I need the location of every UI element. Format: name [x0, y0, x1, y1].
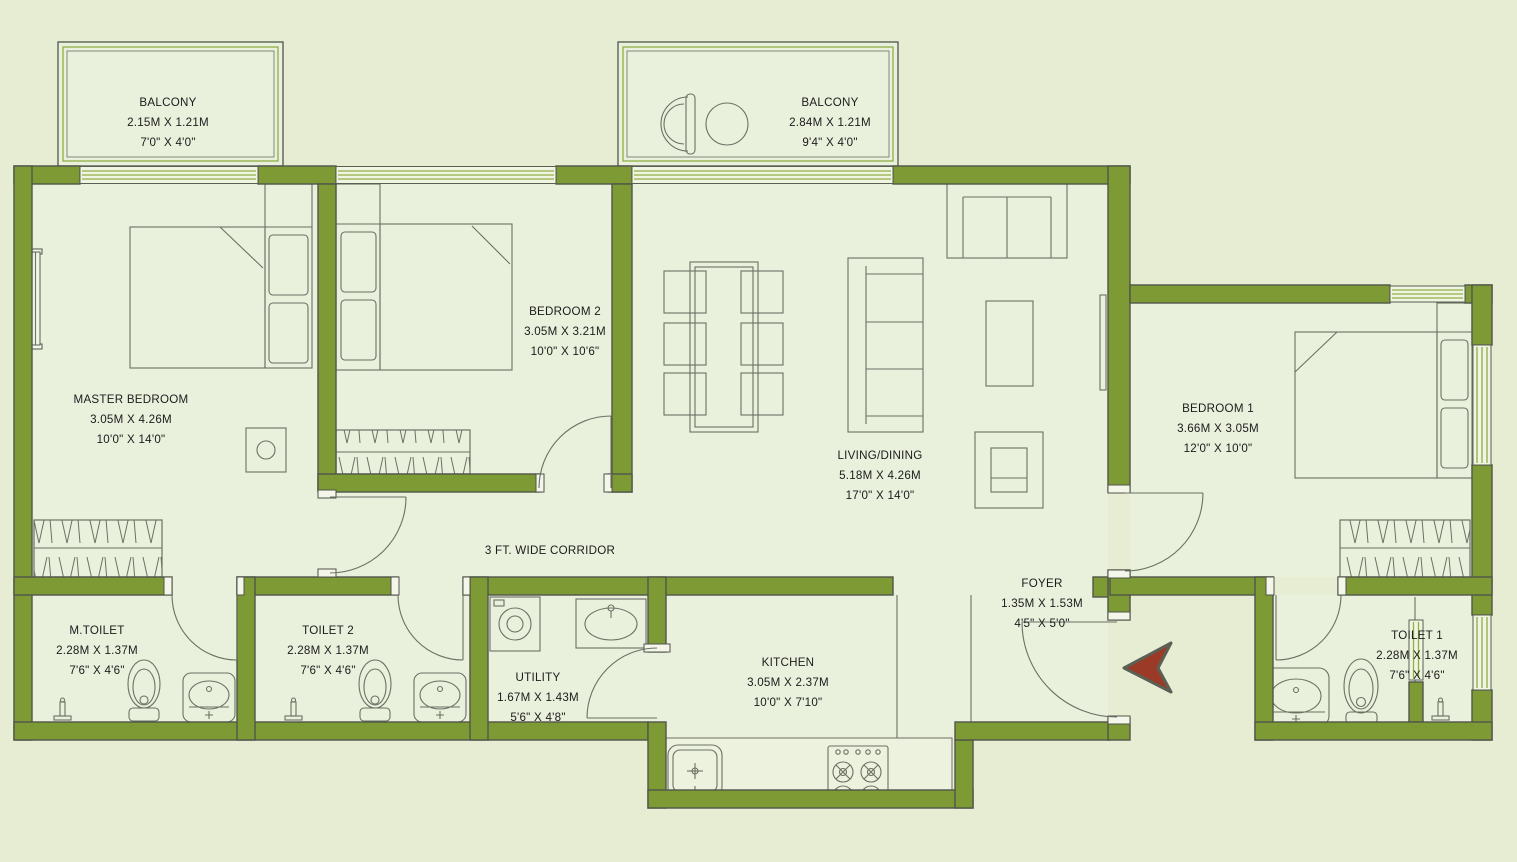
room-dim-metric: 3.66M X 3.05M [1177, 422, 1259, 435]
window-icon-balcony1 [80, 167, 258, 184]
room-name: TOILET 1 [1391, 629, 1443, 642]
room-dim-imperial: 4'5" X 5'0" [1014, 617, 1069, 630]
room-name: BEDROOM 2 [529, 305, 601, 318]
room-dim-imperial: 7'6" X 4'6" [1389, 669, 1444, 682]
window-icon-balcony2 [632, 167, 893, 184]
room-name: MASTER BEDROOM [74, 393, 189, 406]
bedroom2-wardrobe-icon [336, 430, 470, 474]
room-dim-imperial: 5'6" X 4'8" [510, 711, 565, 724]
room-dim-imperial: 10'0" X 7'10" [754, 696, 823, 709]
room-name: UTILITY [516, 671, 561, 684]
room-label-living-dining: LIVING/DINING 5.18M X 4.26M 17'0" X 14'0… [837, 449, 922, 502]
room-name: BALCONY [801, 96, 858, 109]
room-dim-metric: 1.67M X 1.43M [497, 691, 579, 704]
room-name: KITCHEN [762, 656, 815, 669]
room-dim-imperial: 7'6" X 4'6" [69, 664, 124, 677]
room-dim-imperial: 7'6" X 4'6" [300, 664, 355, 677]
room-name: LIVING/DINING [837, 449, 922, 462]
room-dim-metric: 2.84M X 1.21M [789, 116, 871, 129]
floor-plan-canvas: BALCONY 2.15M X 1.21M 7'0" X 4'0" BALCON… [0, 0, 1517, 862]
room-dim-metric: 3.05M X 4.26M [90, 413, 172, 426]
room-dim-metric: 2.28M X 1.37M [56, 644, 138, 657]
room-dim-imperial: 10'0" X 10'6" [531, 345, 600, 358]
room-dim-metric: 3.05M X 2.37M [747, 676, 829, 689]
room-label-bedroom-1: BEDROOM 1 3.66M X 3.05M 12'0" X 10'0" [1177, 402, 1259, 455]
entry-arrow-icon [1124, 643, 1171, 692]
room-dim-imperial: 9'4" X 4'0" [802, 136, 857, 149]
room-dim-imperial: 17'0" X 14'0" [846, 489, 915, 502]
corridor-label: 3 FT. WIDE CORRIDOR [485, 544, 615, 557]
room-dim-metric: 3.05M X 3.21M [524, 325, 606, 338]
room-label-bedroom-2: BEDROOM 2 3.05M X 3.21M 10'0" X 10'6" [524, 305, 606, 358]
room-dim-metric: 2.28M X 1.37M [287, 644, 369, 657]
room-dim-metric: 2.15M X 1.21M [127, 116, 209, 129]
room-dim-metric: 5.18M X 4.26M [839, 469, 921, 482]
window-icon-toilet1-right [1473, 615, 1491, 690]
room-dim-imperial: 10'0" X 14'0" [97, 433, 166, 446]
kitchen-counter [666, 738, 952, 790]
floor-plan: BALCONY 2.15M X 1.21M 7'0" X 4'0" BALCON… [0, 0, 1517, 862]
room-dim-metric: 2.28M X 1.37M [1376, 649, 1458, 662]
window-icon-bedroom1-right [1473, 345, 1491, 465]
room-name: BEDROOM 1 [1182, 402, 1254, 415]
window-icon-bedroom2 [336, 167, 556, 184]
room-name: M.TOILET [69, 624, 124, 637]
master-wardrobe-icon [34, 520, 162, 577]
room-name: BALCONY [139, 96, 196, 109]
bedroom1-wardrobe-icon [1340, 520, 1470, 577]
room-dim-imperial: 12'0" X 10'0" [1184, 442, 1253, 455]
window-icon-bedroom1-top [1390, 286, 1465, 302]
room-dim-metric: 1.35M X 1.53M [1001, 597, 1083, 610]
room-name: FOYER [1021, 577, 1062, 590]
room-name: TOILET 2 [302, 624, 354, 637]
room-dim-imperial: 7'0" X 4'0" [140, 136, 195, 149]
